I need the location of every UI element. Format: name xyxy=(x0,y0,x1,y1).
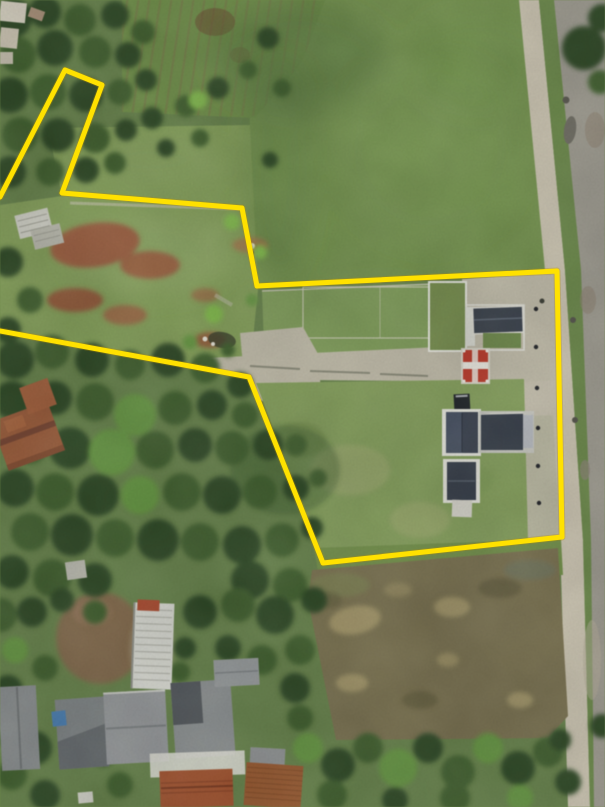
parcel-boundary-shadow xyxy=(0,70,562,563)
parcel-boundary-line xyxy=(0,70,562,563)
aerial-photo xyxy=(0,0,605,807)
survey-annotation-layer xyxy=(0,0,605,807)
